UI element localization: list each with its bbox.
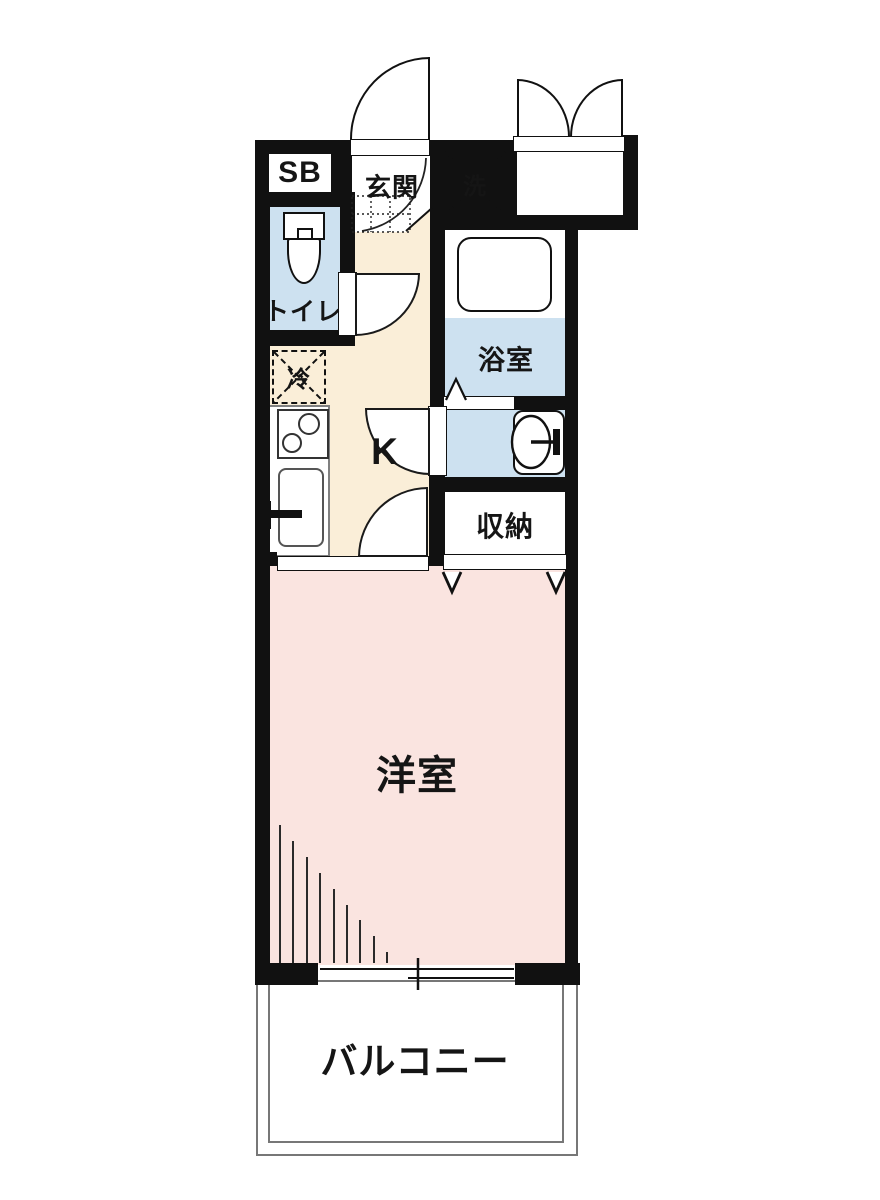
toilet-seat-notch-icon [297,228,313,240]
room-top-closet-floor [517,150,623,215]
room-label-shoe-box: SB [278,156,322,190]
storage-folding-door [443,554,567,570]
closet-door-arc-left [517,79,570,137]
bedroom-door-threshold [277,556,429,571]
closet-door-threshold [513,136,625,152]
room-label-western-room: 洋室 [376,743,458,801]
closet-door-arc-right [570,79,623,137]
wall-washbasin-storage [430,477,578,492]
bathtub-icon [457,237,552,312]
room-label-refrigerator: 冷 [287,360,311,394]
room-label-balcony: バルコニー [320,1031,509,1085]
room-label-kitchen: K [371,431,399,473]
room-label-washer: 洗 [463,167,487,201]
entry-door-threshold [350,139,430,156]
wall-bath-left-upper [430,230,445,408]
room-label-storage: 収納 [476,505,534,545]
wall-bath-bottom-right [513,396,578,410]
washbasin-door-opening [428,406,447,476]
bathroom-door-threshold [443,396,515,410]
floorplan: SB 玄関 洗 トイレ 浴室 冷 K 収納 洋室 バルコニー [0,0,880,1200]
wall-toilet-right [340,192,355,275]
room-label-toilet: トイレ [264,292,342,328]
kitchen-sink-icon [278,468,324,547]
room-label-bathroom: 浴室 [478,339,534,378]
wall-right [565,215,578,985]
stove-icon [277,409,329,459]
wall-bottom-right [515,963,580,985]
washbasin-unit-icon [513,410,565,475]
room-label-entrance: 玄関 [365,168,419,205]
wall-bedroom-top-left [255,552,277,566]
wall-bottom-left [255,963,318,985]
entry-door-arc [350,57,430,139]
